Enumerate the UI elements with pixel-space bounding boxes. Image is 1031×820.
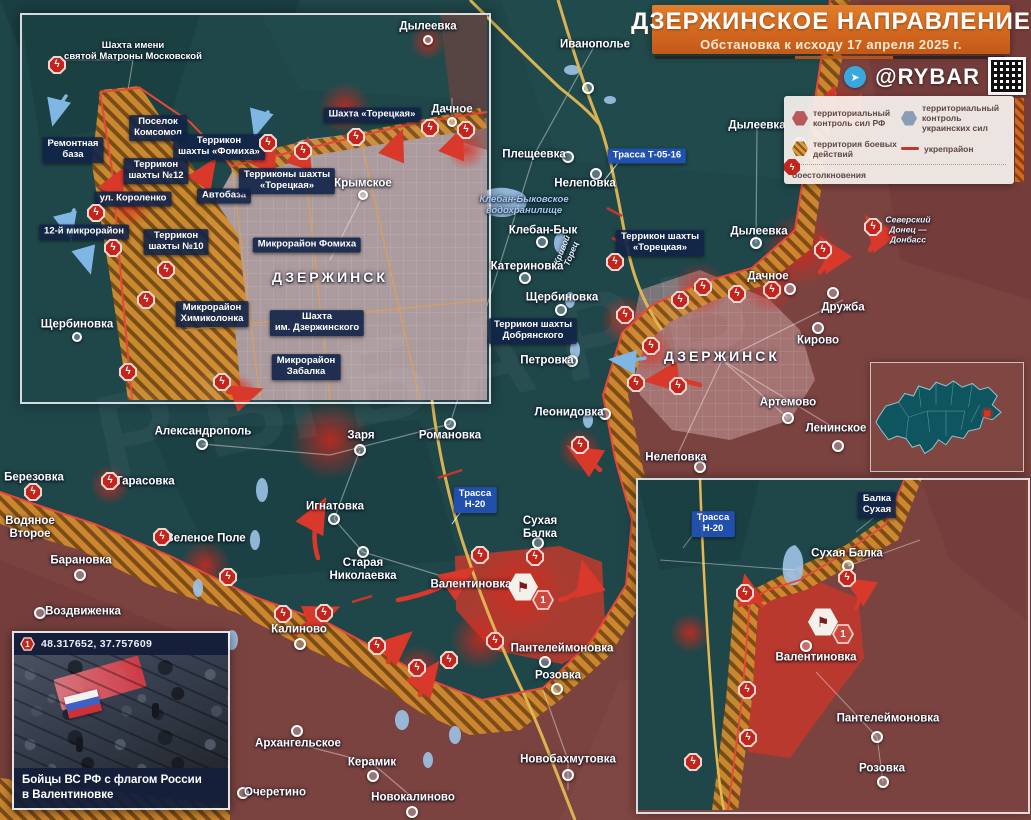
- map-label: Александрополь: [155, 425, 252, 438]
- town-dot: [871, 731, 883, 743]
- event-number: 1: [834, 625, 852, 643]
- ukraine-minimap: [870, 362, 1024, 472]
- clash-icon: ϟ: [24, 483, 42, 501]
- town-dot: [750, 237, 762, 249]
- map-label: Пантелеймоновка: [837, 712, 940, 725]
- lightning-icon: ϟ: [159, 263, 173, 277]
- map-label: Зеленое Поле: [166, 532, 245, 545]
- clash-icon: ϟ: [694, 278, 712, 296]
- clash-icon: ϟ: [671, 291, 689, 309]
- clash-icon: ϟ: [294, 142, 312, 160]
- map-label: Трасса Т-05-16: [608, 149, 686, 164]
- clash-icon: ϟ: [684, 753, 702, 771]
- map-label: Розовка: [859, 762, 905, 775]
- legend-item-rf: территориальный контроль сил РФ: [792, 103, 897, 134]
- map-label: Новобахмутовка: [520, 753, 616, 766]
- legend-divider: [792, 164, 1006, 165]
- clash-icon: ϟ: [347, 128, 365, 146]
- clash-icon: ϟ: [87, 204, 105, 222]
- lightning-icon: ϟ: [765, 283, 779, 297]
- map-label: Террикон шахты №12: [123, 158, 188, 184]
- town-dot: [294, 638, 306, 650]
- map-label: Дружба: [821, 301, 864, 314]
- map-label: Березовка: [4, 471, 64, 484]
- ua-control-icon: [901, 110, 917, 126]
- clash-icon: ϟ: [48, 56, 66, 74]
- lightning-icon: ϟ: [473, 548, 487, 562]
- clash-icon: ϟ: [213, 373, 231, 391]
- clash-icon: ϟ: [838, 569, 856, 587]
- clash-icon: ϟ: [368, 637, 386, 655]
- lightning-icon: ϟ: [740, 683, 754, 697]
- map-label: Клебан-Быковское водохранилище: [479, 195, 568, 217]
- lightning-icon: ϟ: [215, 375, 229, 389]
- map-label: Барановка: [50, 554, 111, 567]
- town-dot: [444, 418, 456, 430]
- clash-icon: ϟ: [864, 218, 882, 236]
- map-label: Кирово: [797, 334, 839, 347]
- town-dot: [354, 444, 366, 456]
- title-banner: ДЗЕРЖИНСКОЕ НАПРАВЛЕНИЕ Обстановка к исх…: [652, 5, 1010, 54]
- town-dot: [812, 322, 824, 334]
- clash-icon: ϟ: [526, 548, 544, 566]
- map-label: Леонидовка: [534, 406, 603, 419]
- event-number-marker: 1: [532, 589, 554, 611]
- clash-icon: ϟ: [763, 281, 781, 299]
- clash-icon: ϟ: [669, 377, 687, 395]
- map-label: Микрорайон Химиколонка: [176, 301, 249, 327]
- lightning-icon: ϟ: [573, 438, 587, 452]
- map-label: Валентиновка: [775, 651, 856, 664]
- russian-flag: [64, 689, 102, 719]
- lightning-icon: ϟ: [410, 661, 424, 675]
- map-label: Дачное: [431, 103, 472, 116]
- lightning-icon: ϟ: [686, 755, 700, 769]
- banner-divider: [655, 56, 1005, 59]
- fortification-line-icon: [901, 147, 919, 150]
- clash-icon: ϟ: [738, 681, 756, 699]
- legend-label: территория боевых действий: [813, 139, 897, 159]
- map-label: Плещеевка: [502, 148, 566, 161]
- clash-legend-icon: ϟ: [784, 159, 800, 175]
- map-label: Дылеевка: [730, 225, 787, 238]
- telegram-icon: ➤: [844, 66, 866, 88]
- town-dot: [367, 770, 379, 782]
- map-label: Микрорайон Забалка: [272, 354, 341, 380]
- map-label: Террикон шахты Добрянского: [489, 318, 577, 344]
- map-label: 12-й микрорайон: [39, 225, 129, 240]
- lightning-icon: ϟ: [221, 570, 235, 584]
- lightning-icon: ϟ: [103, 474, 117, 488]
- legend-label: укрепрайон: [924, 144, 1008, 154]
- clash-icon: ϟ: [153, 528, 171, 546]
- clash-icon: ϟ: [315, 604, 333, 622]
- clash-icon: ϟ: [739, 729, 757, 747]
- lightning-icon: ϟ: [459, 123, 473, 137]
- town-dot: [832, 440, 844, 452]
- map-label: Балка Сухая: [858, 492, 896, 518]
- clash-icon: ϟ: [421, 119, 439, 137]
- legend-label: территориальный контроль сил РФ: [813, 108, 897, 128]
- clash-icon: ϟ: [274, 605, 292, 623]
- clash-icon: ϟ: [736, 584, 754, 602]
- town-dot: [328, 513, 340, 525]
- photo-coordinates: 48.317652, 37.757609: [41, 638, 152, 650]
- lightning-icon: ϟ: [26, 485, 40, 499]
- map-label: Катериновка: [491, 260, 564, 273]
- photo-header: 1 48.317652, 37.757609: [14, 633, 228, 655]
- map-label: Пантелеймоновка: [511, 642, 614, 655]
- map-label: ДЗЕРЖИНСК: [272, 269, 388, 285]
- map-label: Микрорайон Фомиха: [253, 238, 361, 253]
- map-label: Шахта им. Дзержинского: [270, 310, 364, 336]
- map-label: Ленинское: [806, 422, 867, 435]
- clash-icon: ϟ: [606, 253, 624, 271]
- lightning-icon: ϟ: [139, 293, 153, 307]
- town-dot: [555, 304, 567, 316]
- map-label: ДЗЕРЖИНСК: [664, 348, 780, 364]
- lightning-icon: ϟ: [50, 58, 64, 72]
- clash-icon: ϟ: [104, 239, 122, 257]
- clash-icon: ϟ: [486, 632, 504, 650]
- map-label: Крымское: [334, 177, 392, 190]
- legend-stripe: [1015, 98, 1024, 182]
- map-label: Водяное Второе: [5, 515, 55, 541]
- lightning-icon: ϟ: [528, 550, 542, 564]
- lightning-icon: ϟ: [673, 293, 687, 307]
- map-label: Щербиновка: [526, 291, 599, 304]
- lightning-icon: ϟ: [296, 144, 310, 158]
- town-dot: [519, 272, 531, 284]
- town-dot: [782, 412, 794, 424]
- map-label: Щербиновка: [41, 318, 114, 331]
- lightning-icon: ϟ: [644, 339, 658, 353]
- brand-handle: @RYBAR: [875, 64, 980, 90]
- town-dot: [784, 283, 796, 295]
- map-label: Ремонтная база: [43, 137, 104, 163]
- town-dot: [74, 569, 86, 581]
- map-label: Очеретино: [244, 786, 306, 799]
- event-number: 1: [534, 591, 552, 609]
- town-dot: [539, 656, 551, 668]
- town-dot: [406, 806, 418, 818]
- lightning-icon: ϟ: [840, 571, 854, 585]
- clash-icon: ϟ: [137, 291, 155, 309]
- clash-icon: ϟ: [157, 261, 175, 279]
- lightning-icon: ϟ: [816, 243, 830, 257]
- clash-icon: ϟ: [471, 546, 489, 564]
- lightning-icon: ϟ: [671, 379, 685, 393]
- area-of-interest-marker: [984, 410, 990, 416]
- map-label: Воздвиженка: [45, 605, 121, 618]
- town-dot: [877, 776, 889, 788]
- lightning-icon: ϟ: [106, 241, 120, 255]
- lightning-icon: ϟ: [423, 121, 437, 135]
- map-label: ул. Короленко: [95, 192, 172, 207]
- town-dot: [423, 35, 433, 45]
- lightning-icon: ϟ: [629, 376, 643, 390]
- lightning-icon: ϟ: [866, 220, 880, 234]
- legend-item-clash: ϟ боестолкновения: [792, 170, 876, 180]
- battle-zone-icon: [792, 141, 808, 157]
- map-stage: РЫБАРЬ ИванопольеДылеевкаТрасса Т-05-16П…: [0, 0, 1031, 820]
- map-label: Петровка: [520, 354, 573, 367]
- map-legend: территориальный контроль сил РФ территор…: [784, 96, 1014, 184]
- photo-image: [14, 655, 228, 768]
- lightning-icon: ϟ: [738, 586, 752, 600]
- map-label: Трасса Н-20: [692, 511, 735, 537]
- map-label: Нелеповка: [554, 177, 615, 190]
- town-dot: [582, 82, 594, 94]
- town-dot: [72, 332, 82, 342]
- town-dot: [800, 640, 812, 652]
- town-dot: [551, 683, 563, 695]
- legend-label: территориальный контроль украинских сил: [922, 103, 1006, 134]
- map-label: Северский Донец — Донбасс: [885, 215, 930, 244]
- clash-icon: ϟ: [728, 285, 746, 303]
- map-label: Романовка: [419, 429, 481, 442]
- legend-item-fort: укрепрайон: [901, 139, 1008, 159]
- town-dot: [562, 769, 574, 781]
- map-label: Тарасовка: [115, 475, 174, 488]
- map-label: Калиново: [271, 623, 327, 636]
- lightning-icon: ϟ: [370, 639, 384, 653]
- clash-icon: ϟ: [408, 659, 426, 677]
- clash-icon: ϟ: [571, 436, 589, 454]
- town-dot: [358, 190, 368, 200]
- photo-number: 1: [22, 638, 34, 650]
- clash-icon: ϟ: [457, 121, 475, 139]
- lightning-icon: ϟ: [741, 731, 755, 745]
- ukraine-outline: [871, 363, 1021, 469]
- clash-icon: ϟ: [119, 363, 137, 381]
- map-label: Шахта имени святой Матроны Московской: [64, 41, 202, 63]
- map-label: Трасса Н-20: [454, 487, 497, 513]
- lightning-icon: ϟ: [276, 607, 290, 621]
- town-dot: [447, 117, 457, 127]
- map-label: Артемово: [760, 396, 816, 409]
- lightning-icon: ϟ: [442, 653, 456, 667]
- map-label: Иванополье: [560, 38, 630, 51]
- map-label: Новокалиново: [371, 791, 455, 804]
- brand-row: ➤ @RYBAR: [640, 62, 980, 92]
- town-dot: [827, 287, 839, 299]
- rf-control-icon: [792, 110, 808, 126]
- legend-item-ua: территориальный контроль украинских сил: [901, 103, 1006, 134]
- lightning-icon: ϟ: [261, 136, 275, 150]
- page-subtitle: Обстановка к исходу 17 апреля 2025 г.: [700, 37, 962, 52]
- lightning-icon: ϟ: [155, 530, 169, 544]
- map-label: Игнатовка: [306, 500, 364, 513]
- map-label: Террикон шахты №10: [143, 229, 208, 255]
- town-dot: [536, 236, 548, 248]
- town-dot: [196, 438, 208, 450]
- map-label: Керамик: [348, 756, 396, 769]
- clash-icon: ϟ: [627, 374, 645, 392]
- map-label: Архангельское: [255, 737, 341, 750]
- map-label: Старая Николаевка: [329, 557, 396, 583]
- clash-icon: ϟ: [219, 568, 237, 586]
- map-label: Терриконы шахты «Торецкая»: [239, 168, 335, 194]
- soldier-figure: [152, 703, 159, 718]
- map-label: Розовка: [535, 669, 581, 682]
- map-label: Нелеповка: [645, 451, 706, 464]
- clash-icon: ϟ: [259, 134, 277, 152]
- lightning-icon: ϟ: [349, 130, 363, 144]
- map-label: Дылеевка: [728, 119, 785, 132]
- lightning-icon: ϟ: [730, 287, 744, 301]
- map-label: Валентиновка: [430, 578, 511, 591]
- clash-icon: ϟ: [440, 651, 458, 669]
- photo-inset: 1 48.317652, 37.757609 Бойцы ВС РФ с фла…: [12, 631, 230, 810]
- map-label: Сухая Балка: [811, 547, 883, 560]
- legend-item-battle: территория боевых действий: [792, 139, 897, 159]
- lightning-icon: ϟ: [317, 606, 331, 620]
- lightning-icon: ϟ: [488, 634, 502, 648]
- lightning-icon: ϟ: [696, 280, 710, 294]
- map-label: Сухая Балка: [523, 515, 557, 541]
- town-dot: [291, 725, 303, 737]
- map-label: Террикон шахты «Торецкая»: [616, 230, 704, 256]
- map-label: Заря: [347, 429, 374, 442]
- photo-caption: Бойцы ВС РФ с флагом России в Валентинов…: [14, 768, 228, 808]
- qr-code: [988, 57, 1026, 95]
- page-title: ДЗЕРЖИНСКОЕ НАПРАВЛЕНИЕ: [631, 8, 1031, 36]
- map-label: Шахта «Торецкая»: [324, 108, 421, 123]
- clash-icon: ϟ: [814, 241, 832, 259]
- photo-number-marker: 1: [20, 637, 35, 652]
- lightning-icon: ϟ: [608, 255, 622, 269]
- clash-icon: ϟ: [642, 337, 660, 355]
- clash-icon: ϟ: [616, 306, 634, 324]
- soldier-figure: [76, 737, 83, 752]
- map-label: Террикон шахты «Фомиха»: [173, 134, 265, 160]
- lightning-icon: ϟ: [618, 308, 632, 322]
- map-label: Дылеевка: [399, 20, 456, 33]
- lightning-icon: ϟ: [89, 206, 103, 220]
- lightning-icon: ϟ: [121, 365, 135, 379]
- legend-label: боестолкновения: [792, 170, 876, 180]
- clash-icon: ϟ: [101, 472, 119, 490]
